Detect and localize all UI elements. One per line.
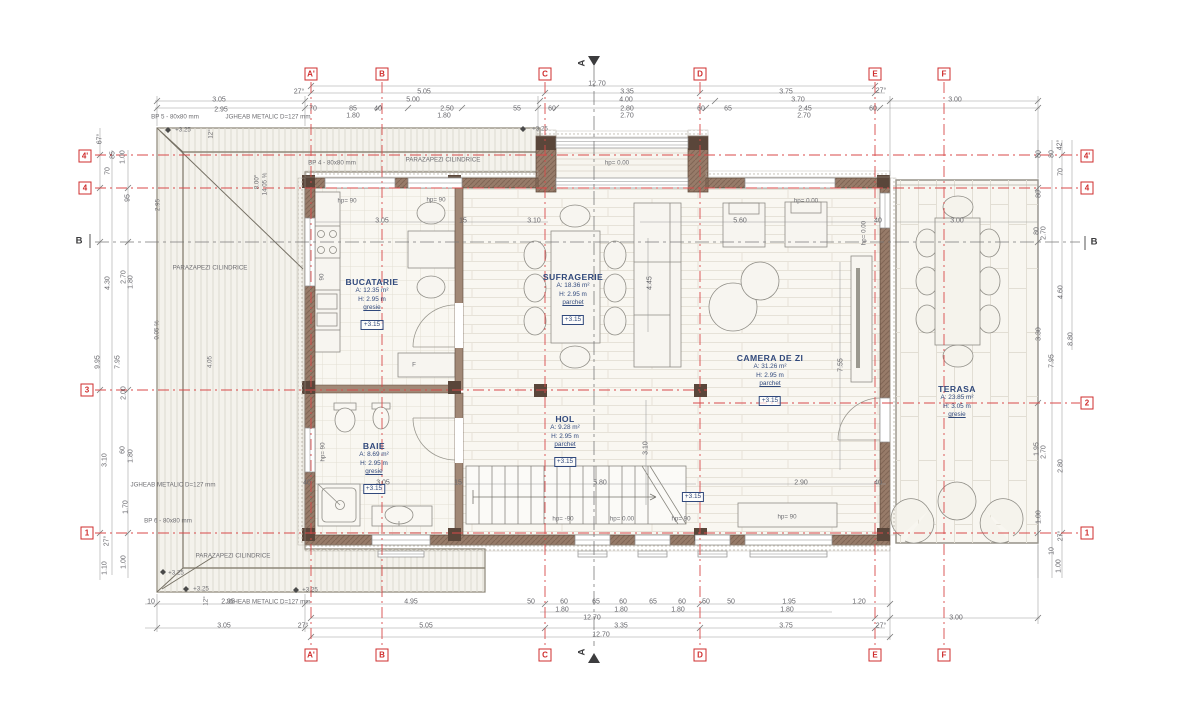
dim-label: 50 <box>727 599 735 606</box>
dim-label: +3.15 <box>682 492 704 502</box>
dim-label: 2.80 <box>1058 459 1065 473</box>
dim-label: 1.70 <box>123 500 130 514</box>
dim-label: 15 <box>454 480 462 487</box>
dim-label: 60 <box>619 599 627 606</box>
dim-label: 3.10 <box>102 453 109 467</box>
dim-label: 5.00 <box>406 97 420 104</box>
grid-marker-4: 4 <box>79 182 92 195</box>
room-level: +3.15 <box>363 484 385 494</box>
room-area: A: 18.36 m² <box>543 282 603 291</box>
dim-label: 10 <box>147 599 155 606</box>
dim-label: 1.00 <box>121 555 128 569</box>
annotation-label: BP 4 - 80x80 mm <box>308 160 356 167</box>
dim-label: 42° <box>1057 140 1064 151</box>
dim-label: 1.80 <box>128 275 135 289</box>
dim-label: 67° <box>97 134 104 145</box>
room-area: A: 12.35 m² <box>346 287 399 296</box>
room-area: A: 31.26 m² <box>737 363 804 372</box>
annotation-label: +3.25 <box>193 586 209 593</box>
dim-label: 5.60 <box>733 218 747 225</box>
dim-label: 7.95 <box>1049 354 1056 368</box>
grid-marker-a-prime: A' <box>305 649 318 662</box>
section-letter: B <box>76 238 83 245</box>
dim-label: 1.95 <box>1034 442 1041 456</box>
dim-label: 2.90 <box>794 480 808 487</box>
annotation-label: hp= 0.00 <box>605 160 629 167</box>
room-level: +3.15 <box>361 320 383 330</box>
dim-label: 2.70 <box>1041 226 1048 240</box>
dim-label: 3.10 <box>527 218 541 225</box>
room-floor-finish: gresie <box>359 468 388 477</box>
grid-marker-b: B <box>376 649 389 662</box>
dim-label: 70 <box>309 106 317 113</box>
section-letter: B <box>1091 239 1098 246</box>
grid-marker-c: C <box>539 649 552 662</box>
annotation-label: hp= 0.00 <box>610 516 634 523</box>
dim-label: 2.80 <box>620 106 634 113</box>
grid-marker-d: D <box>694 649 707 662</box>
room-floor-finish: gresie <box>346 304 399 313</box>
dim-label: 15 <box>459 218 467 225</box>
dim-label: 27° <box>294 89 305 96</box>
annotation-label: 4.05 <box>207 356 214 368</box>
dim-label: 8.80 <box>1068 332 1075 346</box>
room-name: BUCATARIE <box>346 277 399 287</box>
dim-label: 4.30 <box>105 276 112 290</box>
grid-marker-1: 1 <box>1081 527 1094 540</box>
dim-label: 60 <box>120 446 127 454</box>
dim-label: 5.05 <box>417 89 431 96</box>
dim-label: 60 <box>869 106 877 113</box>
annotation-label: 14.05 % <box>262 173 269 196</box>
room-name: SUFRAGERIE <box>543 272 603 282</box>
staircase <box>466 466 686 524</box>
dim-label: 80 <box>1036 190 1043 198</box>
room-label-baie: BAIEA: 8.69 m²H: 2.95 mgresie+3.15 <box>359 441 388 495</box>
dim-label: 1.00 <box>120 150 127 164</box>
dim-label: 2.70 <box>1041 445 1048 459</box>
dim-label: 5.05 <box>419 623 433 630</box>
dim-label: 3.05 <box>217 623 231 630</box>
room-height: H: 2.95 m <box>543 291 603 300</box>
dim-label: 3.35 <box>620 89 634 96</box>
dim-label: 3.05 <box>375 218 389 225</box>
dim-label: 50 <box>702 599 710 606</box>
dim-label: 1.20 <box>852 599 866 606</box>
annotation-label: hp= 90 <box>671 516 690 523</box>
annotation-label: +3.25 <box>175 127 191 134</box>
dim-label: 27° <box>876 88 887 95</box>
grid-marker-d: D <box>694 68 707 81</box>
annotation-label: hp= 0.00 <box>794 198 818 205</box>
annotation-label: BP 6 - 80x80 mm <box>144 518 192 525</box>
dim-label: 12.70 <box>592 632 610 639</box>
annotation-label: PARAZAPEZI CILINDRICE <box>196 553 271 560</box>
annotation-label: 90 <box>319 274 326 281</box>
dim-label: 2.95 <box>221 599 235 606</box>
dim-label: 1.80 <box>437 113 451 120</box>
grid-marker-e: E <box>869 68 882 81</box>
dim-label: 27° <box>298 623 309 630</box>
dim-label: 5.80 <box>593 480 607 487</box>
room-height: H: 2.95 m <box>737 372 804 381</box>
room-height: H: 2.95 m <box>346 296 399 305</box>
dim-label: 60 <box>697 106 705 113</box>
room-floor-finish: gresie <box>938 411 976 420</box>
dim-label: 55 <box>513 106 521 113</box>
room-level: +3.15 <box>554 457 576 467</box>
dim-label: 50 <box>527 599 535 606</box>
dim-label: 65 <box>592 599 600 606</box>
dim-label: 1.80 <box>346 113 360 120</box>
floor-plan-page: 12.7027°5.053.353.7527°3.055.004.003.703… <box>0 0 1200 719</box>
dim-label: 65 <box>649 599 657 606</box>
dim-label: 65 <box>724 106 732 113</box>
dim-label: 40 <box>303 480 311 487</box>
dim-label: 85 <box>110 151 117 159</box>
grid-marker-2: 2 <box>1081 397 1094 410</box>
annotation-label: +3.25 <box>168 570 184 577</box>
dim-label: 70 <box>105 167 112 175</box>
annotation-label: JGHEAB METALIC D=127 mm <box>131 482 216 489</box>
dim-label: 60 <box>678 599 686 606</box>
grid-marker-4: 4 <box>1081 182 1094 195</box>
dim-label: 3.00 <box>948 97 962 104</box>
dim-label: 9.95 <box>95 355 102 369</box>
room-area: A: 8.69 m² <box>359 451 388 460</box>
room-height: H: 3.05 m <box>938 403 976 412</box>
room-area: A: 23.85 m² <box>938 394 976 403</box>
dim-label: 2.70 <box>121 270 128 284</box>
room-label-terasa: TERASAA: 23.85 m²H: 3.05 mgresie <box>938 384 976 420</box>
room-floor-finish: parchet <box>550 441 579 450</box>
annotation-label: 12° <box>208 129 215 138</box>
room-floor-finish: parchet <box>543 299 603 308</box>
annotation-label: BP 5 - 80x80 mm <box>151 114 199 121</box>
grid-marker-3: 3 <box>81 384 94 397</box>
dim-label: 3.75 <box>779 89 793 96</box>
dim-label: 2.00 <box>121 386 128 400</box>
dim-label: 1.80 <box>128 449 135 463</box>
room-area: A: 9.28 m² <box>550 424 579 433</box>
dim-label: 4.00 <box>619 97 633 104</box>
dim-label: 1.95 <box>782 599 796 606</box>
grid-marker-e: E <box>869 649 882 662</box>
grid-marker-f: F <box>938 649 951 662</box>
annotation-label: hp= 90 <box>337 198 356 205</box>
dim-label: 1.00 <box>1056 559 1063 573</box>
dim-label: 3.00 <box>950 218 964 225</box>
grid-marker-c: C <box>539 68 552 81</box>
dim-label: 2.70 <box>620 113 634 120</box>
dim-label: 4.60 <box>1058 285 1065 299</box>
room-name: CAMERA DE ZI <box>737 353 804 363</box>
dim-label: 3.35 <box>614 623 628 630</box>
annotation-label: hp= -90 <box>552 516 573 523</box>
room-floor-finish: parchet <box>737 380 804 389</box>
dim-label: 3.70 <box>791 97 805 104</box>
annotation-label: 2.95 <box>155 199 162 211</box>
dim-label: 3.10 <box>643 441 650 455</box>
dim-label: 27° <box>1058 531 1065 542</box>
dim-label: 4.95 <box>404 599 418 606</box>
dim-label: 4.45 <box>647 276 654 290</box>
room-label-sufragerie: SUFRAGERIEA: 18.36 m²H: 2.95 mparchet+3.… <box>543 272 603 326</box>
grid-marker-1: 1 <box>81 527 94 540</box>
annotation-label: 0.05 % <box>154 320 161 339</box>
dim-label: 60 <box>548 106 556 113</box>
dim-label: 40 <box>374 106 382 113</box>
dim-label: 12.70 <box>583 615 601 622</box>
dim-label: 2.95 <box>214 107 228 114</box>
dim-label: 3.05 <box>212 97 226 104</box>
annotation-label: PARAZAPEZI CILINDRICE <box>406 157 481 164</box>
annotation-label: +3.25 <box>302 587 318 594</box>
grid-marker-4-prime: 4' <box>79 150 92 163</box>
annotation-label: F <box>412 362 416 369</box>
dim-label: 2.50 <box>440 106 454 113</box>
room-level: +3.15 <box>759 396 781 406</box>
annotation-label: JGHEAB METALIC D=127 mm <box>226 114 311 121</box>
room-name: HOL <box>550 414 579 424</box>
dim-label: 1.10 <box>102 561 109 575</box>
room-label-camera-de-zi: CAMERA DE ZIA: 31.26 m²H: 2.95 mparchet+… <box>737 353 804 407</box>
dim-label: 3.75 <box>779 623 793 630</box>
dim-label: 60 <box>560 599 568 606</box>
dim-label: 1.80 <box>780 607 794 614</box>
room-label-bucatarie: BUCATARIEA: 12.35 m²H: 2.95 mgresie+3.15 <box>346 277 399 331</box>
annotation-label: +3.25 <box>532 126 548 133</box>
dim-label: 80 <box>1049 150 1056 158</box>
dim-label: 3.00 <box>949 615 963 622</box>
annotation-label: JGHEAB METALIC D=127 mm <box>226 599 311 606</box>
dim-label: 80 <box>1036 150 1043 158</box>
dim-label: 40 <box>874 480 882 487</box>
dim-label: 40 <box>874 218 882 225</box>
room-level: +3.15 <box>562 315 584 325</box>
annotation-label: PARAZAPEZI CILINDRICE <box>173 265 248 272</box>
dim-label: 10 <box>1049 547 1056 555</box>
dim-label: 7.95 <box>115 355 122 369</box>
dim-label: 1.80 <box>671 607 685 614</box>
annotation-label: hp= 90 <box>777 514 796 521</box>
grid-marker-b: B <box>376 68 389 81</box>
annotation-label: hp= 90 <box>426 197 445 204</box>
dim-label: 12.70 <box>588 81 606 88</box>
room-label-hol: HOLA: 9.28 m²H: 2.95 mparchet+3.15 <box>550 414 579 468</box>
annotation-label: 8.00° <box>254 175 261 190</box>
grid-marker-a-prime: A' <box>305 68 318 81</box>
dim-label: 2.45 <box>798 106 812 113</box>
annotation-label: hp= 0.00 <box>861 221 868 245</box>
room-height: H: 2.95 m <box>550 433 579 442</box>
dim-label: 95 <box>125 194 132 202</box>
annotation-label: 12° <box>203 596 210 605</box>
annotation-label: hp= 90 <box>320 442 327 461</box>
grid-marker-f: F <box>938 68 951 81</box>
dim-label: 27° <box>104 536 111 547</box>
grid-marker-4-prime: 4' <box>1081 150 1094 163</box>
dim-label: 70 <box>1058 168 1065 176</box>
dim-label: 1.00 <box>1036 510 1043 524</box>
dim-label: 27° <box>876 623 887 630</box>
dim-label: 80 <box>1034 227 1041 235</box>
dim-label: 7.55 <box>838 358 845 372</box>
dim-label: 85 <box>349 106 357 113</box>
section-letter: A <box>579 649 586 656</box>
dim-label: 1.80 <box>555 607 569 614</box>
dim-label: 3.30 <box>1036 327 1043 341</box>
room-name: BAIE <box>359 441 388 451</box>
floor-plan-drawing <box>0 0 1200 719</box>
room-height: H: 2.95 m <box>359 460 388 469</box>
section-letter: A <box>579 60 586 67</box>
dim-label: 1.80 <box>614 607 628 614</box>
dim-label: 2.70 <box>797 113 811 120</box>
room-name: TERASA <box>938 384 976 394</box>
